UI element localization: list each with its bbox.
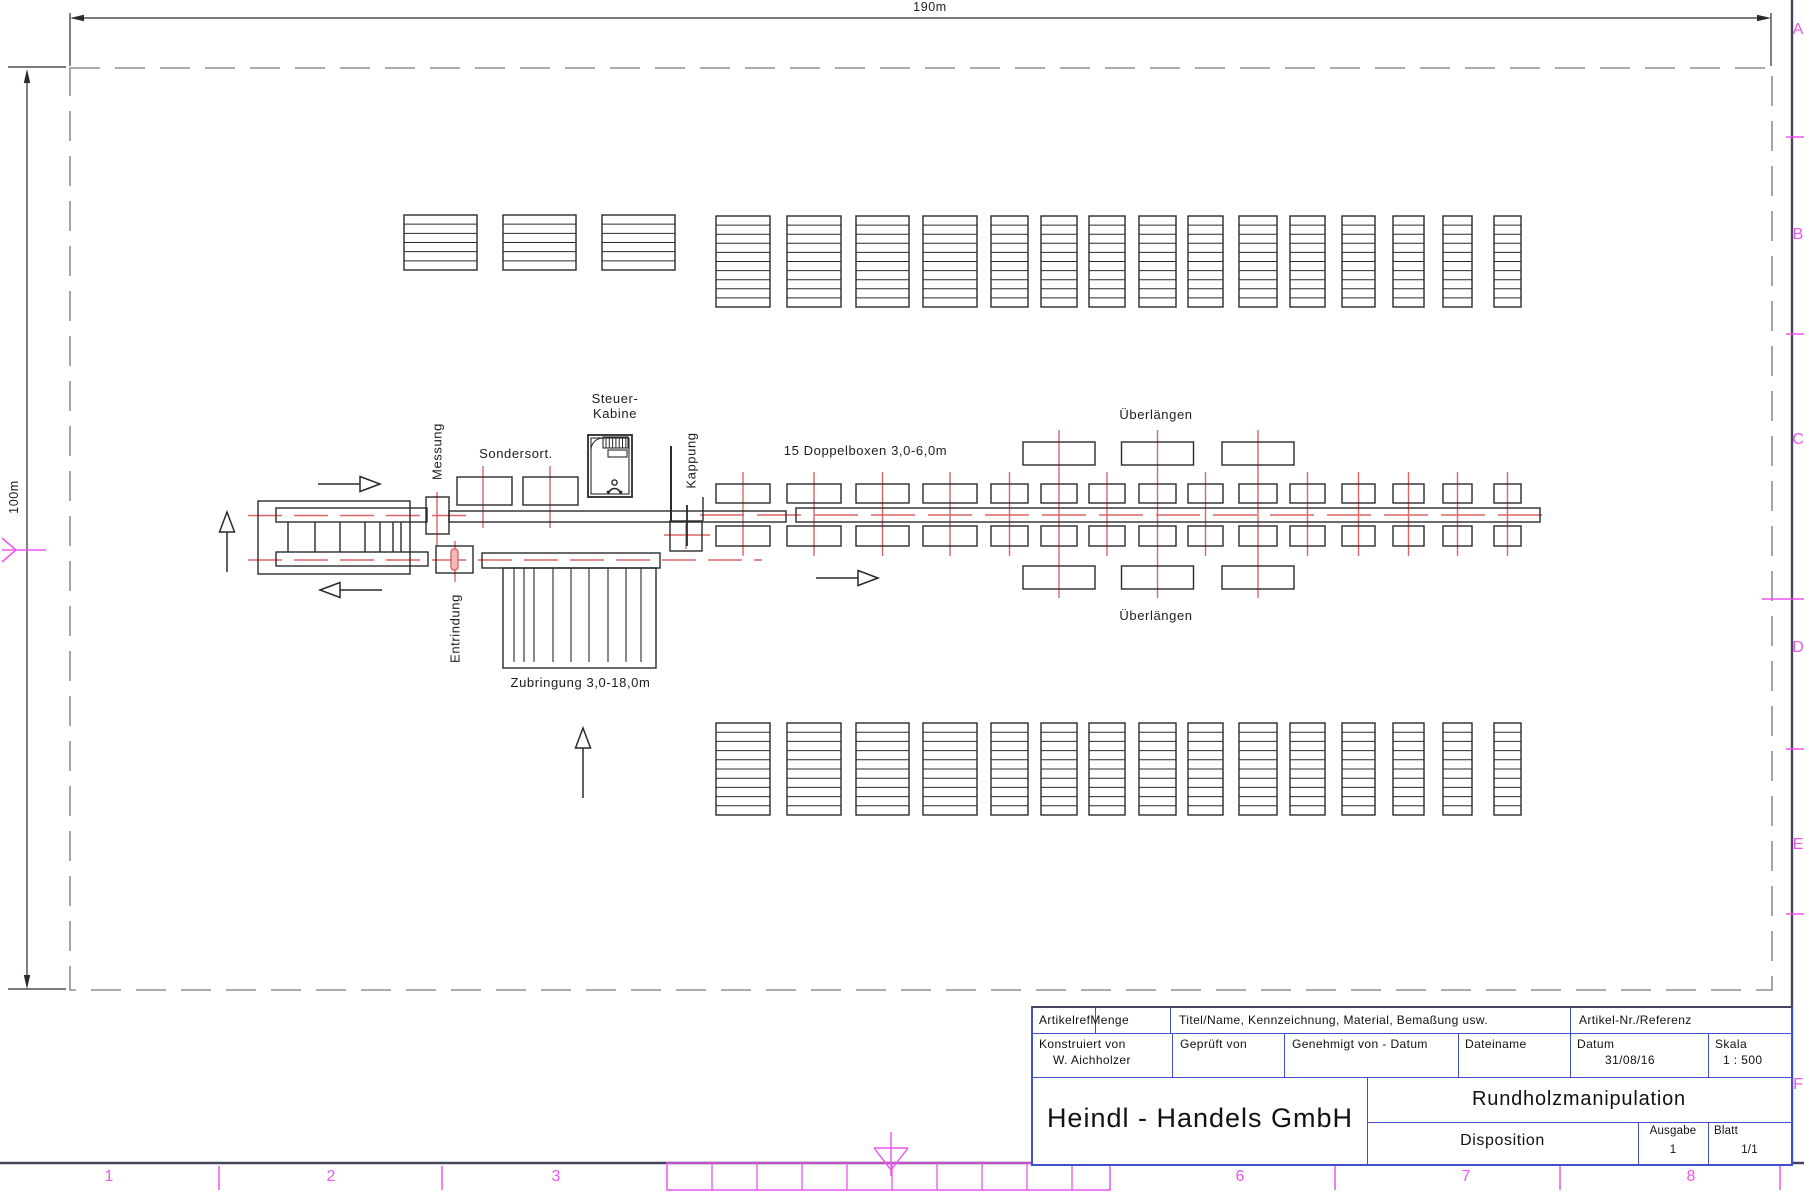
log-storage-bottom: [716, 723, 1521, 815]
grid-row-letter: D: [1791, 639, 1804, 657]
field-konstruiert-label: Konstruiert von: [1039, 1037, 1126, 1051]
field-artikelref: Artikelref: [1039, 1013, 1090, 1027]
field-geprueft-label: Geprüft von: [1180, 1037, 1247, 1051]
grid-row-letter: C: [1791, 431, 1804, 449]
titleblock-divider: [1033, 1033, 1791, 1034]
field-titel: Titel/Name, Kennzeichnung, Material, Bem…: [1179, 1013, 1488, 1027]
titleblock-divider: [1708, 1033, 1709, 1077]
label-steuer-line1: Steuer-: [592, 391, 639, 406]
label-doppelboxen: 15 Doppelboxen 3,0-6,0m: [763, 443, 968, 458]
blatt-label: Blatt: [1714, 1125, 1738, 1137]
titleblock-divider: [1708, 1122, 1709, 1164]
ueberlaengen-lower-boxes: [1023, 566, 1294, 589]
titleblock-divider: [1170, 1008, 1171, 1033]
title-block: ArtikelrefMenge Titel/Name, Kennzeichnun…: [1031, 1006, 1793, 1166]
grid-col-number: 6: [1227, 1168, 1253, 1186]
field-dateiname-label: Dateiname: [1465, 1037, 1527, 1051]
log-storage-top: [716, 216, 1521, 307]
label-entrindung: Entrindung: [448, 584, 463, 674]
field-skala-label: Skala: [1715, 1037, 1747, 1051]
project-title: Rundholzmanipulation: [1367, 1088, 1791, 1111]
steuer-kabine: [588, 435, 632, 497]
dimension-left-label: 100m: [7, 470, 21, 524]
ausgabe-value: 1: [1638, 1144, 1708, 1156]
grid-col-number: 3: [543, 1168, 569, 1186]
doppelboxen-upper-row: [716, 484, 1521, 503]
titleblock-divider: [1033, 1077, 1791, 1078]
plot-boundary: [70, 68, 1772, 990]
titleblock-divider: [1284, 1033, 1285, 1077]
center-fold-mark: [874, 1132, 908, 1176]
grid-col-number: 2: [318, 1168, 344, 1186]
infeed-log-deck: [258, 501, 428, 574]
grid-col-number: 1: [96, 1168, 122, 1186]
doppelboxen-lower-row: [716, 526, 1521, 546]
field-konstruiert-value: W. Aichholzer: [1053, 1053, 1131, 1067]
field-genehmigt-label: Genehmigt von - Datum: [1292, 1037, 1428, 1051]
field-datum-value: 31/08/16: [1605, 1053, 1655, 1067]
blatt-value: 1/1: [1708, 1144, 1791, 1156]
label-kappung: Kappung: [684, 426, 699, 496]
field-datum-label: Datum: [1577, 1037, 1614, 1051]
field-skala-value: 1 : 500: [1723, 1053, 1763, 1067]
grid-row-letter: F: [1791, 1076, 1804, 1094]
grid-col-number: 7: [1453, 1168, 1479, 1186]
label-steuer-line2: Kabine: [593, 406, 637, 421]
company-name: Heindl - Handels GmbH: [1033, 1103, 1367, 1134]
ausgabe-label: Ausgabe: [1638, 1125, 1708, 1137]
log-storage-top-left: [404, 215, 675, 270]
titleblock-divider: [1172, 1033, 1173, 1077]
doc-type: Disposition: [1367, 1132, 1638, 1150]
operator-figure: [607, 480, 623, 495]
drawing-sheet: 190m 100m Messung Sondersort. Steuer- Ka…: [0, 0, 1804, 1198]
field-artikel-nr: Artikel-Nr./Referenz: [1579, 1013, 1692, 1027]
titleblock-divider: [1570, 1008, 1571, 1077]
label-messung: Messung: [430, 417, 445, 487]
grid-col-number: 8: [1678, 1168, 1704, 1186]
titleblock-divider: [1367, 1122, 1791, 1123]
sondersort-boxes: [457, 477, 578, 505]
grid-row-letter: B: [1791, 226, 1804, 244]
ueberlaengen-upper-boxes: [1023, 442, 1294, 465]
flow-arrows: [220, 477, 879, 799]
label-ueberlaengen-top: Überlängen: [1096, 407, 1216, 422]
field-artikelref-menge: ArtikelrefMenge: [1039, 1013, 1129, 1027]
titleblock-divider: [1458, 1033, 1459, 1077]
label-zubringung: Zubringung 3,0-18,0m: [478, 675, 683, 690]
dimension-top-label: 190m: [900, 0, 960, 14]
field-menge: Menge: [1090, 1013, 1129, 1027]
grid-row-letter: A: [1791, 21, 1804, 39]
zubringung-deck: [482, 553, 660, 668]
grid-row-letter: E: [1791, 836, 1804, 854]
label-steuer-kabine: Steuer- Kabine: [565, 391, 665, 421]
label-ueberlaengen-bottom: Überlängen: [1096, 608, 1216, 623]
label-sondersort: Sondersort.: [466, 446, 566, 461]
sheet-frame: [0, 0, 1804, 1163]
